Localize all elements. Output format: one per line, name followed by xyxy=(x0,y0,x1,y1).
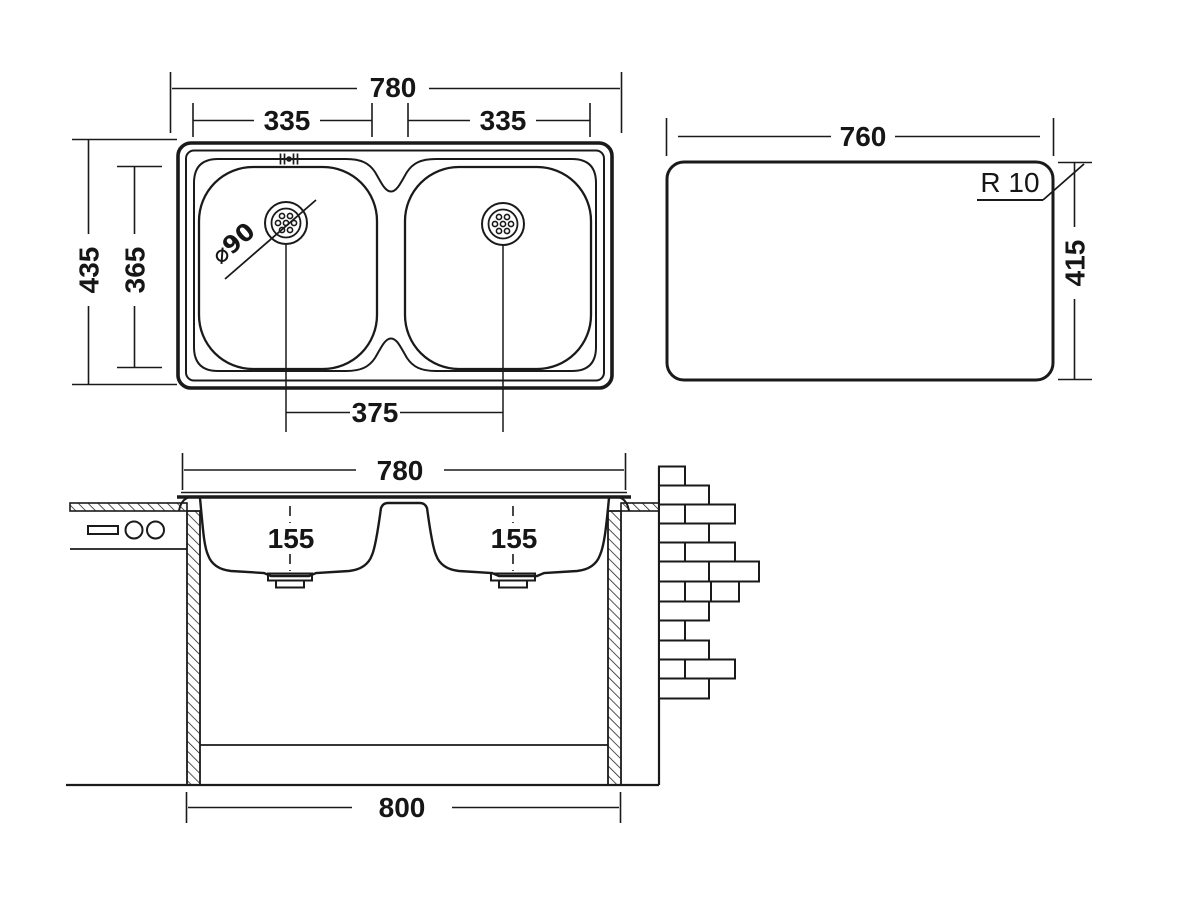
appliance-knob-2 xyxy=(147,522,164,539)
cutout-radius-callout: R 10 xyxy=(977,164,1084,200)
cutout-view: 760 R 10 415 xyxy=(667,118,1093,380)
section-dim-left-bowl-depth: 155 xyxy=(268,506,315,571)
drain-diameter-label: ⌀90 xyxy=(206,217,260,270)
faucet-hole-mark xyxy=(268,154,310,165)
plan-sink-outer-edge xyxy=(178,143,612,388)
plan-dim-right-bowl: 335 xyxy=(408,103,590,137)
right-drain xyxy=(482,203,524,245)
plan-width-label: 780 xyxy=(370,72,417,103)
section-right-bowl-depth-label: 155 xyxy=(491,523,538,554)
cutout-radius-label: R 10 xyxy=(980,167,1039,198)
section-dim-right-bowl-depth: 155 xyxy=(491,506,538,571)
cabinet-wall-right xyxy=(608,511,621,785)
section-left-bowl-depth-label: 155 xyxy=(268,523,315,554)
plan-rim-contour xyxy=(194,159,596,371)
plan-sink-inner-edge xyxy=(186,151,604,381)
section-rim-width-label: 780 xyxy=(377,455,424,486)
appliance-handle xyxy=(88,526,118,534)
plan-right-bowl xyxy=(405,167,591,369)
plan-right-bowl-width-label: 335 xyxy=(480,105,527,136)
drawing-svg: ⌀90 780 335 335 xyxy=(0,0,1200,900)
section-dim-rim-width: 780 xyxy=(183,453,626,490)
plan-dim-width: 780 xyxy=(171,72,622,133)
plan-dim-left-bowl: 335 xyxy=(193,103,372,137)
section-dim-cabinet-width: 800 xyxy=(187,792,621,823)
plan-dim-bowl-depth: 365 xyxy=(117,167,162,368)
plan-bowl-depth-label: 365 xyxy=(119,247,150,294)
plan-dim-drain-spacing: 375 xyxy=(286,244,503,432)
plan-depth-label: 435 xyxy=(73,247,104,294)
section-bowls-profile xyxy=(200,498,609,576)
appliance-panel xyxy=(70,522,187,550)
section-view: 780 xyxy=(66,453,759,823)
cutout-dim-height: 415 xyxy=(1058,163,1092,380)
cutout-height-label: 415 xyxy=(1059,240,1090,287)
cabinet-wall-left xyxy=(187,511,200,785)
counter-left xyxy=(70,503,187,511)
plan-view: ⌀90 780 335 335 xyxy=(72,72,622,432)
cutout-width-label: 760 xyxy=(840,121,887,152)
brick-wall xyxy=(659,466,759,785)
plan-left-bowl-width-label: 335 xyxy=(264,105,311,136)
sink-technical-drawing: ⌀90 780 335 335 xyxy=(0,0,1200,900)
cutout-dim-width: 760 xyxy=(667,118,1054,156)
plan-drain-spacing-label: 375 xyxy=(352,397,399,428)
appliance-knob-1 xyxy=(126,522,143,539)
section-cabinet-width-label: 800 xyxy=(379,792,426,823)
